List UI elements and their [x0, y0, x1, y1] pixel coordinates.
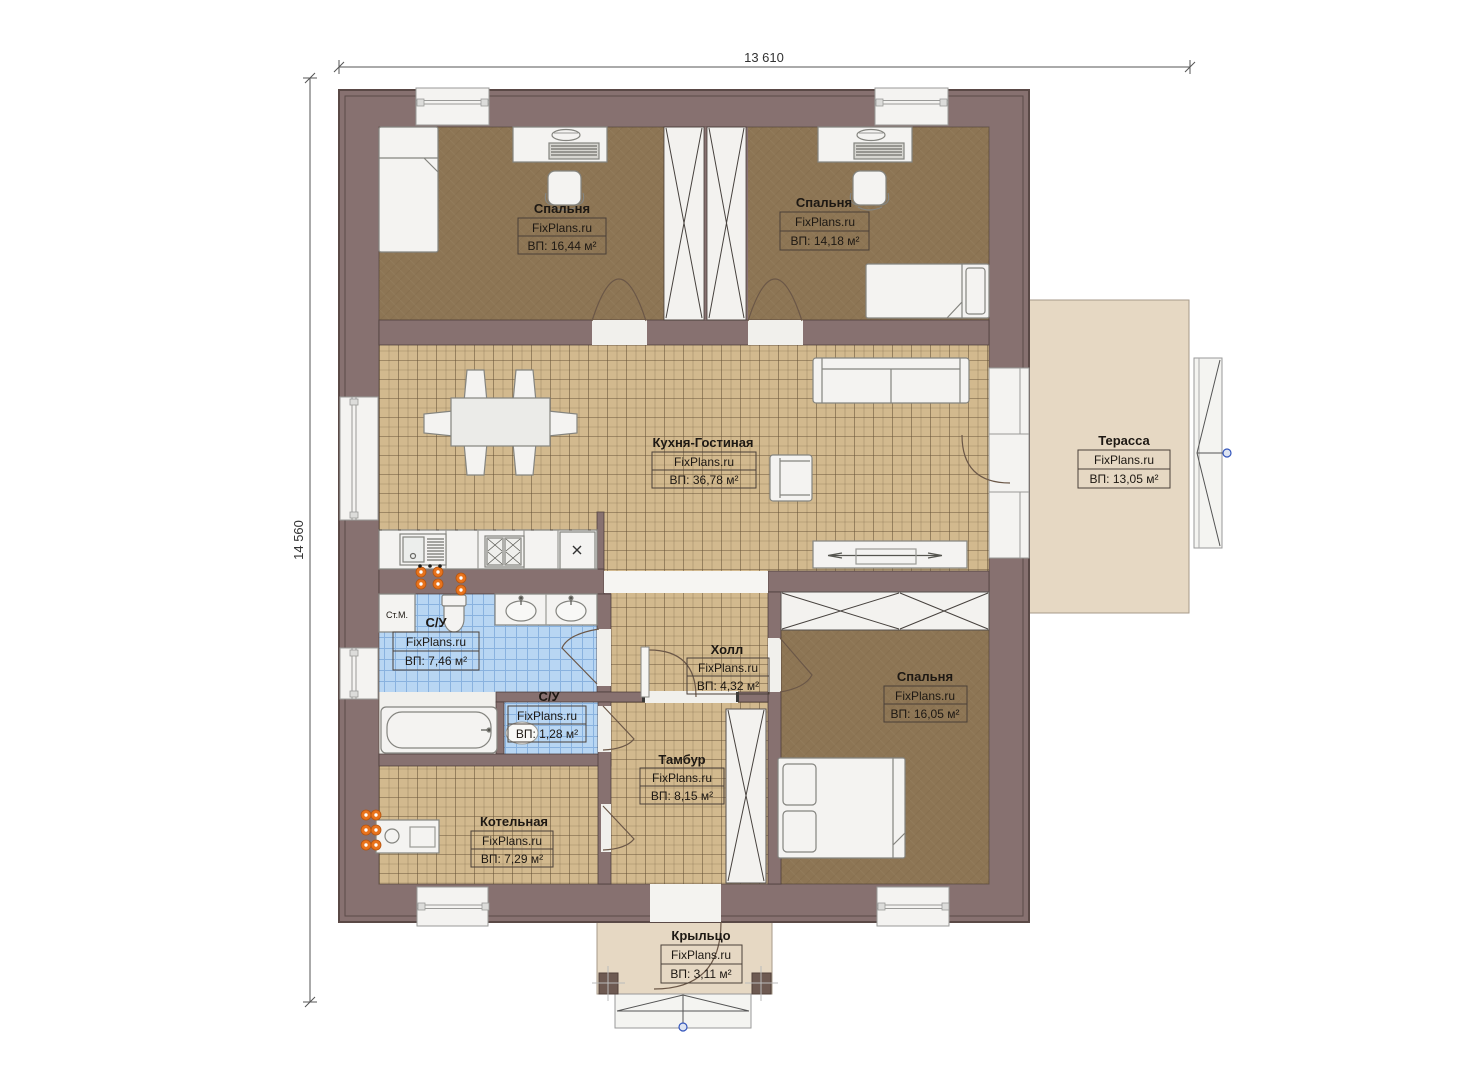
svg-text:Кухня-Гостиная: Кухня-Гостиная — [652, 435, 753, 450]
svg-text:Тамбур: Тамбур — [658, 752, 705, 767]
svg-text:14 560: 14 560 — [291, 520, 306, 560]
svg-text:ВП: 4,32 м²: ВП: 4,32 м² — [697, 679, 759, 693]
svg-text:FixPlans.ru: FixPlans.ru — [1094, 453, 1154, 467]
svg-text:13 610: 13 610 — [744, 50, 784, 65]
svg-text:FixPlans.ru: FixPlans.ru — [652, 771, 712, 785]
svg-text:ВП: 13,05 м²: ВП: 13,05 м² — [1090, 472, 1159, 486]
svg-text:FixPlans.ru: FixPlans.ru — [674, 455, 734, 469]
svg-text:Крыльцо: Крыльцо — [671, 928, 730, 943]
svg-text:ВП: 16,05 м²: ВП: 16,05 м² — [891, 707, 960, 721]
svg-text:Холл: Холл — [711, 642, 744, 657]
svg-text:Спальня: Спальня — [534, 201, 590, 216]
svg-text:ВП: 3,11 м²: ВП: 3,11 м² — [670, 967, 731, 981]
svg-text:С/У: С/У — [425, 615, 447, 630]
svg-text:FixPlans.ru: FixPlans.ru — [517, 709, 577, 723]
svg-text:ВП: 7,46 м²: ВП: 7,46 м² — [405, 654, 467, 668]
svg-text:ВП: 14,18 м²: ВП: 14,18 м² — [791, 234, 860, 248]
svg-text:FixPlans.ru: FixPlans.ru — [671, 948, 731, 962]
svg-text:ВП: 36,78 м²: ВП: 36,78 м² — [670, 473, 739, 487]
svg-text:FixPlans.ru: FixPlans.ru — [698, 661, 758, 675]
svg-text:FixPlans.ru: FixPlans.ru — [406, 635, 466, 649]
svg-text:FixPlans.ru: FixPlans.ru — [482, 834, 542, 848]
svg-text:ВП: 1,28 м²: ВП: 1,28 м² — [516, 727, 578, 741]
svg-text:Котельная: Котельная — [480, 814, 548, 829]
svg-text:FixPlans.ru: FixPlans.ru — [532, 221, 592, 235]
svg-text:ВП: 7,29 м²: ВП: 7,29 м² — [481, 852, 543, 866]
svg-text:Спальня: Спальня — [796, 195, 852, 210]
svg-text:С/У: С/У — [538, 689, 560, 704]
svg-text:Спальня: Спальня — [897, 669, 953, 684]
svg-text:Ст.М.: Ст.М. — [386, 610, 408, 620]
svg-text:Терасса: Терасса — [1098, 433, 1150, 448]
svg-text:ВП: 8,15 м²: ВП: 8,15 м² — [651, 789, 713, 803]
svg-text:FixPlans.ru: FixPlans.ru — [795, 215, 855, 229]
svg-text:FixPlans.ru: FixPlans.ru — [895, 689, 955, 703]
svg-text:ВП: 16,44 м²: ВП: 16,44 м² — [528, 239, 597, 253]
